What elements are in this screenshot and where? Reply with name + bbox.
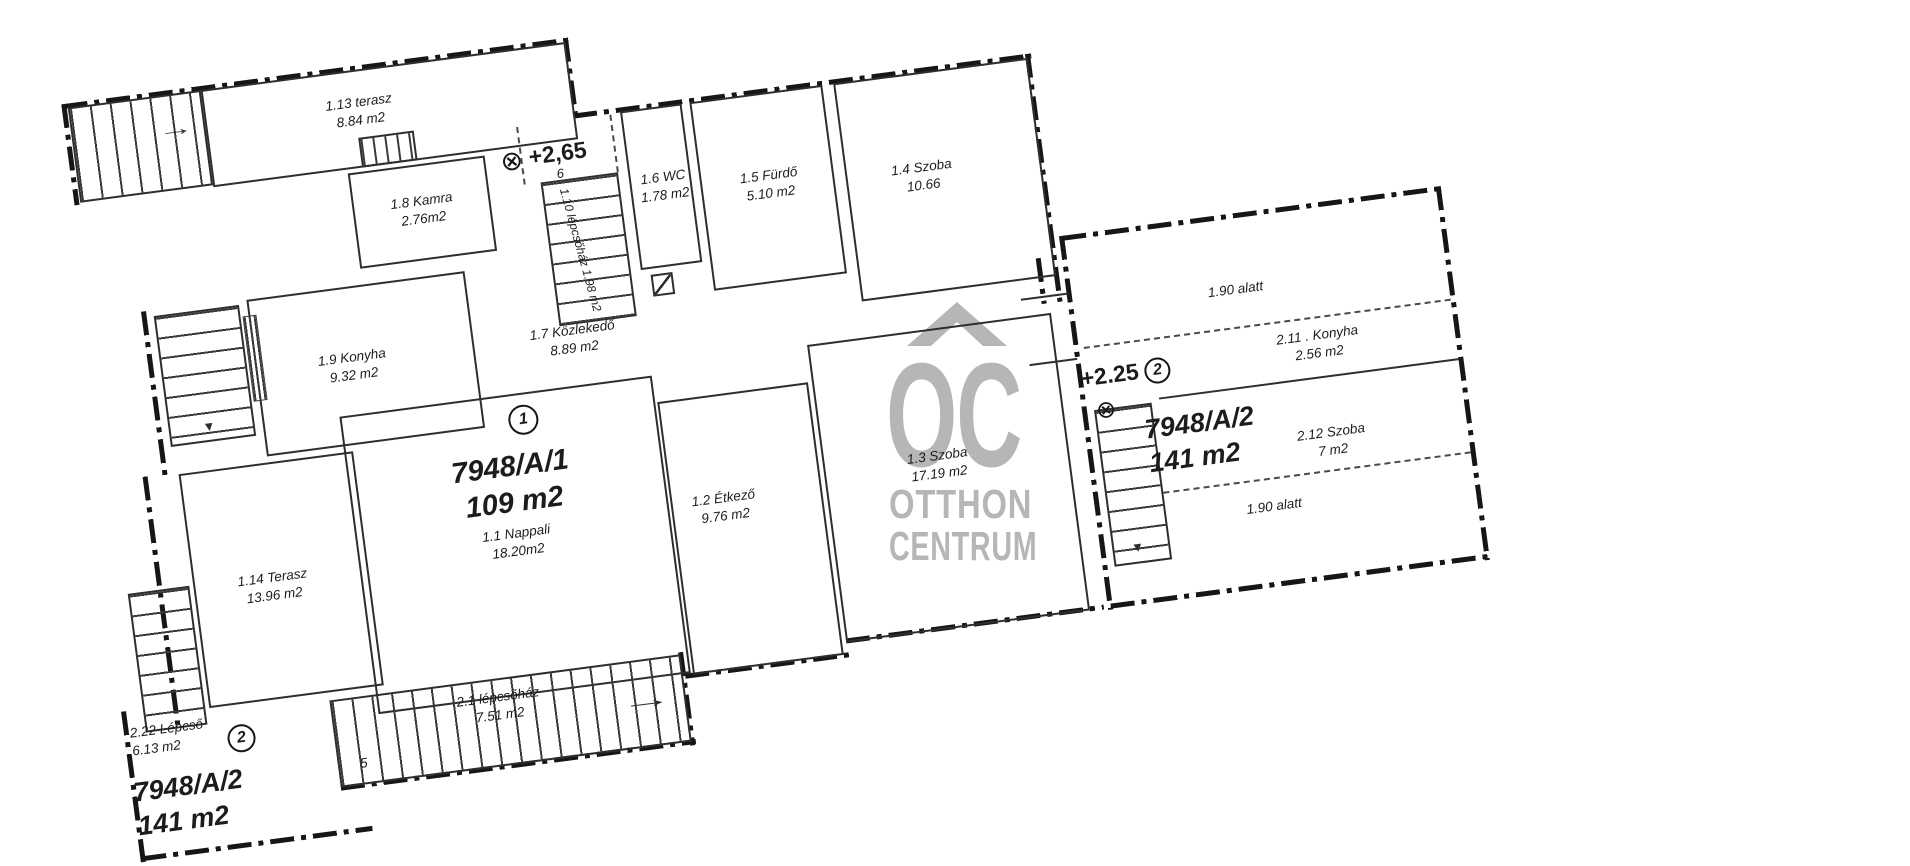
- stair-direction-arrow: →: [156, 117, 194, 142]
- wing-wall-top: [1062, 186, 1442, 241]
- level-symbol-icon: ⊗: [1095, 397, 1118, 423]
- level-marker-2: +2.25 2: [1079, 356, 1172, 394]
- floorplan: → ▼ → ▼ 1.13 terasz8.84 m2 1.8 Kamra2.76…: [0, 0, 1910, 866]
- stair-direction-arrow: ▼: [1130, 540, 1144, 555]
- attic-label-top: 1.90 alatt: [1145, 269, 1326, 310]
- apartment2-badge: 2: [1143, 356, 1172, 385]
- terrace-steps: [358, 131, 417, 168]
- wing-wall-right: [1436, 186, 1490, 560]
- apartment2-title-bottom: 7948/A/2141 m2: [132, 746, 374, 844]
- floorplan-canvas: { "watermark": { "brand_top": "OC", "bra…: [0, 0, 1910, 866]
- apartment2-title-wing: 7948/A/2141 m2: [1143, 388, 1350, 481]
- level-symbol-icon: ⊗: [499, 147, 525, 177]
- projection-line: [609, 115, 619, 173]
- stair-direction-arrow: ▼: [202, 419, 216, 434]
- stairs-top-left: [68, 90, 213, 203]
- attic-label-bottom: 1.90 alatt: [1194, 487, 1355, 525]
- shaft-symbol: [651, 272, 676, 297]
- wing-wall-bottom: [1110, 554, 1490, 609]
